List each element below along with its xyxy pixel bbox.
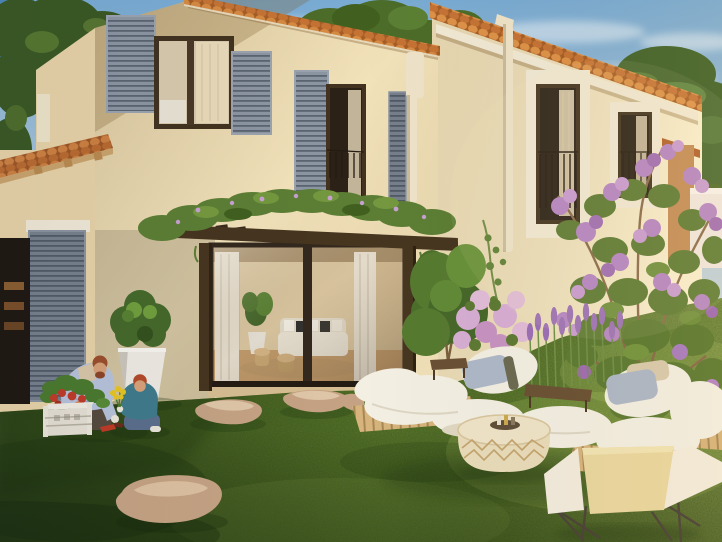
rendering-canvas [0,0,722,542]
villa-garden-rendering [0,0,722,542]
light-overlay [0,0,722,542]
